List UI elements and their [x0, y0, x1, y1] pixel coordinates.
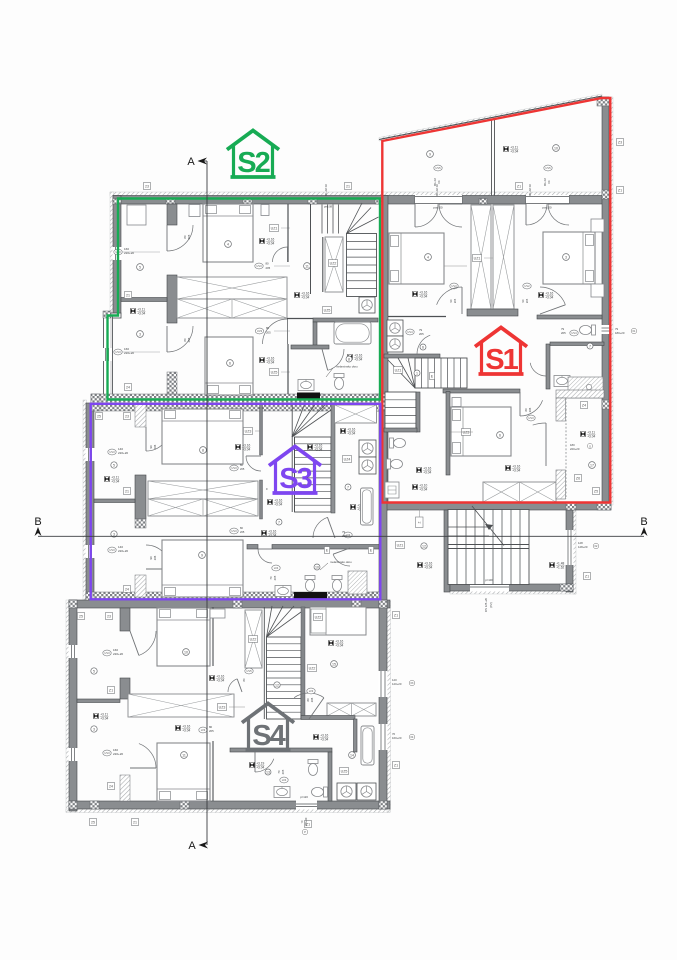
svg-text:UV3: UV3: [104, 651, 110, 655]
svg-text:A: A: [187, 156, 195, 168]
svg-text:120+20: 120+20: [392, 682, 402, 686]
svg-text:UV3: UV3: [528, 416, 534, 420]
svg-text:4: 4: [227, 242, 229, 246]
svg-text:+3.04: +3.04: [266, 242, 274, 246]
svg-text:UZ2: UZ2: [250, 638, 257, 642]
svg-text:8: 8: [202, 448, 204, 452]
svg-text:S2: S2: [237, 147, 269, 179]
svg-text:Z1: Z1: [517, 185, 521, 189]
svg-text:S1: S1: [485, 344, 518, 376]
svg-text:S4: S4: [252, 720, 285, 752]
svg-text:220+20: 220+20: [118, 451, 128, 455]
svg-text:205: 205: [240, 467, 245, 471]
svg-text:+3.04: +3.04: [268, 534, 276, 538]
svg-text:UV4: UV4: [571, 331, 577, 335]
svg-text:Z6: Z6: [576, 477, 580, 481]
svg-text:205: 205: [528, 407, 532, 412]
svg-text:1: 1: [416, 371, 418, 375]
svg-text:6: 6: [422, 345, 424, 349]
svg-text:A: A: [188, 840, 196, 852]
svg-text:80+02 06: 80+02 06: [435, 184, 439, 196]
svg-text:80: 80: [266, 326, 270, 330]
svg-text:UV3: UV3: [104, 751, 110, 755]
svg-text:+3.04: +3.04: [314, 448, 322, 452]
svg-text:9: 9: [429, 152, 431, 156]
svg-text:3: 3: [565, 255, 567, 259]
svg-text:+3.04: +3.04: [256, 766, 264, 770]
svg-text:+3.04: +3.04: [301, 296, 309, 300]
svg-text:LV3: LV3: [309, 689, 314, 693]
svg-text:12: 12: [422, 544, 426, 548]
svg-text:UV3: UV3: [115, 350, 121, 354]
svg-text:205: 205: [273, 575, 277, 580]
svg-text:Z3: Z3: [618, 141, 622, 145]
svg-text:24: 24: [125, 588, 129, 592]
svg-text:205: 205: [266, 266, 271, 270]
svg-text:p=120: p=120: [300, 795, 308, 799]
svg-text:10: 10: [315, 565, 319, 569]
svg-text:UZ2: UZ2: [309, 667, 316, 671]
svg-text:3: 3: [113, 532, 115, 536]
svg-text:23: 23: [145, 185, 149, 189]
svg-text:+3.04: +3.04: [216, 679, 224, 683]
svg-text:UV3: UV3: [231, 466, 237, 470]
svg-text:UZ4: UZ4: [344, 458, 351, 462]
svg-text:+3.04: +3.04: [419, 488, 427, 492]
svg-text:+3.04: +3.04: [111, 480, 119, 484]
svg-text:205: 205: [187, 337, 191, 342]
svg-text:Z1: Z1: [394, 614, 398, 618]
svg-text:LV3: LV3: [201, 728, 206, 732]
svg-text:UV3: UV3: [231, 529, 237, 533]
svg-text:11: 11: [182, 753, 186, 757]
svg-text:25: 25: [91, 821, 95, 825]
svg-text:+3.04: +3.04: [512, 469, 520, 473]
svg-text:UV5: UV5: [545, 166, 551, 170]
svg-text:Z1: Z1: [618, 189, 622, 193]
svg-text:205: 205: [310, 697, 314, 702]
svg-text:8: 8: [348, 357, 350, 361]
svg-text:80: 80: [524, 408, 528, 411]
svg-text:14: 14: [350, 753, 354, 757]
svg-text:220+20: 220+20: [570, 447, 580, 451]
svg-text:S: S: [589, 444, 591, 448]
svg-text:220+20: 220+20: [118, 549, 128, 553]
svg-text:p=100: p=100: [485, 578, 493, 582]
svg-text:205: 205: [525, 298, 529, 303]
svg-text:7: 7: [347, 485, 349, 489]
svg-text:21: 21: [125, 490, 129, 494]
svg-text:5: 5: [93, 669, 95, 673]
svg-text:melaminsko okno: melaminsko okno: [336, 365, 358, 369]
svg-text:23: 23: [107, 615, 111, 619]
svg-text:25: 25: [97, 415, 101, 419]
svg-text:10: 10: [184, 650, 188, 654]
svg-text:LV4: LV4: [274, 566, 279, 570]
svg-text:Z5: Z5: [594, 490, 598, 494]
svg-text:+3.04: +3.04: [320, 738, 328, 742]
svg-text:UV5: UV5: [246, 669, 252, 673]
svg-text:UV4: UV4: [407, 330, 413, 334]
svg-text:220+20: 220+20: [113, 752, 123, 756]
svg-text:205: 205: [266, 331, 271, 335]
svg-text:90: 90: [149, 556, 153, 559]
svg-text:(P2): (P2): [489, 602, 493, 607]
svg-text:3: 3: [93, 727, 95, 731]
svg-text:80: 80: [306, 698, 310, 701]
svg-text:+3.04: +3.04: [510, 150, 518, 154]
svg-text:Z: Z: [418, 521, 422, 523]
svg-text:06: 06: [547, 180, 551, 184]
svg-text:25: 25: [79, 615, 83, 619]
svg-text:+3.04: +3.04: [182, 729, 190, 733]
svg-text:5: 5: [139, 265, 141, 269]
svg-text:24: 24: [126, 386, 130, 390]
svg-text:13: 13: [266, 770, 270, 774]
svg-text:205: 205: [240, 530, 245, 534]
svg-text:3: 3: [139, 332, 141, 336]
svg-text:+1.62: +1.62: [556, 566, 564, 570]
svg-text:220+20: 220+20: [124, 251, 134, 255]
svg-text:+3.04: +3.04: [587, 435, 595, 439]
svg-text:15: 15: [332, 662, 336, 666]
svg-text:UZ3: UZ3: [245, 430, 252, 434]
svg-text:205: 205: [153, 444, 157, 449]
svg-text:LV4: LV4: [282, 778, 287, 782]
svg-text:+3.04: +3.04: [419, 295, 427, 299]
svg-text:F: F: [266, 487, 268, 491]
svg-text:UZ1: UZ1: [271, 227, 278, 231]
svg-text:205: 205: [187, 234, 191, 239]
svg-text:80+02 06: 80+02 06: [324, 184, 328, 196]
svg-text:S3: S3: [279, 463, 312, 495]
svg-text:21: 21: [126, 294, 130, 298]
svg-text:Z4: Z4: [582, 404, 586, 408]
svg-text:ped.08: ped.08: [324, 205, 332, 209]
svg-text:6: 6: [499, 433, 501, 437]
svg-text:12: 12: [275, 683, 279, 687]
svg-text:B: B: [640, 516, 647, 528]
svg-text:21: 21: [346, 185, 350, 189]
svg-text:160+20: 160+20: [392, 736, 402, 740]
svg-text:23: 23: [125, 415, 129, 419]
svg-text:+3.04: +3.04: [266, 361, 274, 365]
svg-text:UZ5: UZ5: [341, 770, 348, 774]
svg-text:+3.04: +3.04: [545, 296, 553, 300]
svg-text:128+20: 128+20: [578, 545, 588, 549]
svg-text:Z1: Z1: [585, 575, 589, 579]
svg-text:205: 205: [453, 298, 457, 303]
svg-text:+3.04: +3.04: [335, 644, 343, 648]
svg-text:205: 205: [209, 729, 214, 733]
svg-text:80: 80: [266, 262, 270, 266]
svg-text:80+02 06: 80+02 06: [528, 184, 532, 196]
svg-text:UZ1: UZ1: [474, 257, 481, 261]
svg-text:17: 17: [590, 463, 594, 467]
svg-text:220+20: 220+20: [124, 351, 134, 355]
svg-text:melaminsko okno: melaminsko okno: [330, 560, 352, 564]
svg-text:21: 21: [133, 821, 137, 825]
svg-text:UZ1: UZ1: [395, 369, 402, 373]
svg-text:+3.04: +3.04: [423, 471, 431, 475]
svg-text:B: B: [34, 516, 41, 528]
svg-text:205: 205: [281, 769, 285, 774]
svg-text:220+20: 220+20: [113, 652, 123, 656]
svg-text:UV3: UV3: [256, 264, 262, 268]
svg-text:165+20: 165+20: [304, 817, 308, 826]
svg-text:7: 7: [278, 520, 280, 524]
svg-text:+3.04: +3.04: [137, 312, 145, 316]
svg-text:UZ1: UZ1: [397, 544, 404, 548]
svg-text:UZ5: UZ5: [271, 371, 278, 375]
svg-text:4: 4: [427, 255, 429, 259]
svg-text:Z1: Z1: [109, 689, 113, 693]
svg-text:+3.04: +3.04: [424, 566, 432, 570]
svg-text:205: 205: [561, 331, 566, 335]
svg-text:+3.04: +3.04: [354, 358, 362, 362]
svg-text:6: 6: [229, 361, 231, 365]
svg-text:24: 24: [109, 785, 113, 789]
svg-text:UV3: UV3: [109, 450, 115, 454]
svg-text:205: 205: [153, 555, 157, 560]
svg-text:+3.04: +3.04: [100, 717, 108, 721]
svg-text:+3.04: +3.04: [274, 503, 282, 507]
svg-text:UZ3: UZ3: [463, 431, 470, 435]
svg-text:11: 11: [305, 264, 309, 268]
svg-text:+3.04: +3.04: [347, 432, 355, 436]
svg-text:UZ2: UZ2: [315, 616, 322, 620]
svg-text:180+20: 180+20: [615, 331, 625, 335]
svg-text:205: 205: [419, 332, 424, 336]
svg-text:10: 10: [554, 146, 558, 150]
svg-text:+3.04: +3.04: [242, 448, 250, 452]
svg-text:UZ2: UZ2: [330, 262, 337, 266]
svg-text:UV3: UV3: [109, 548, 115, 552]
svg-text:UV5: UV5: [435, 166, 441, 170]
svg-text:UV2: UV2: [524, 284, 530, 288]
svg-text:7: 7: [589, 344, 591, 348]
svg-text:90: 90: [149, 445, 153, 448]
svg-text:UV3: UV3: [257, 329, 263, 333]
svg-text:UZ3: UZ3: [219, 706, 226, 710]
svg-text:UZ5: UZ5: [324, 309, 331, 313]
svg-text:06: 06: [437, 180, 441, 184]
svg-text:OS 125+20: OS 125+20: [484, 597, 488, 612]
svg-text:5: 5: [113, 463, 115, 467]
svg-text:9: 9: [201, 553, 203, 557]
svg-text:Z1: Z1: [394, 764, 398, 768]
